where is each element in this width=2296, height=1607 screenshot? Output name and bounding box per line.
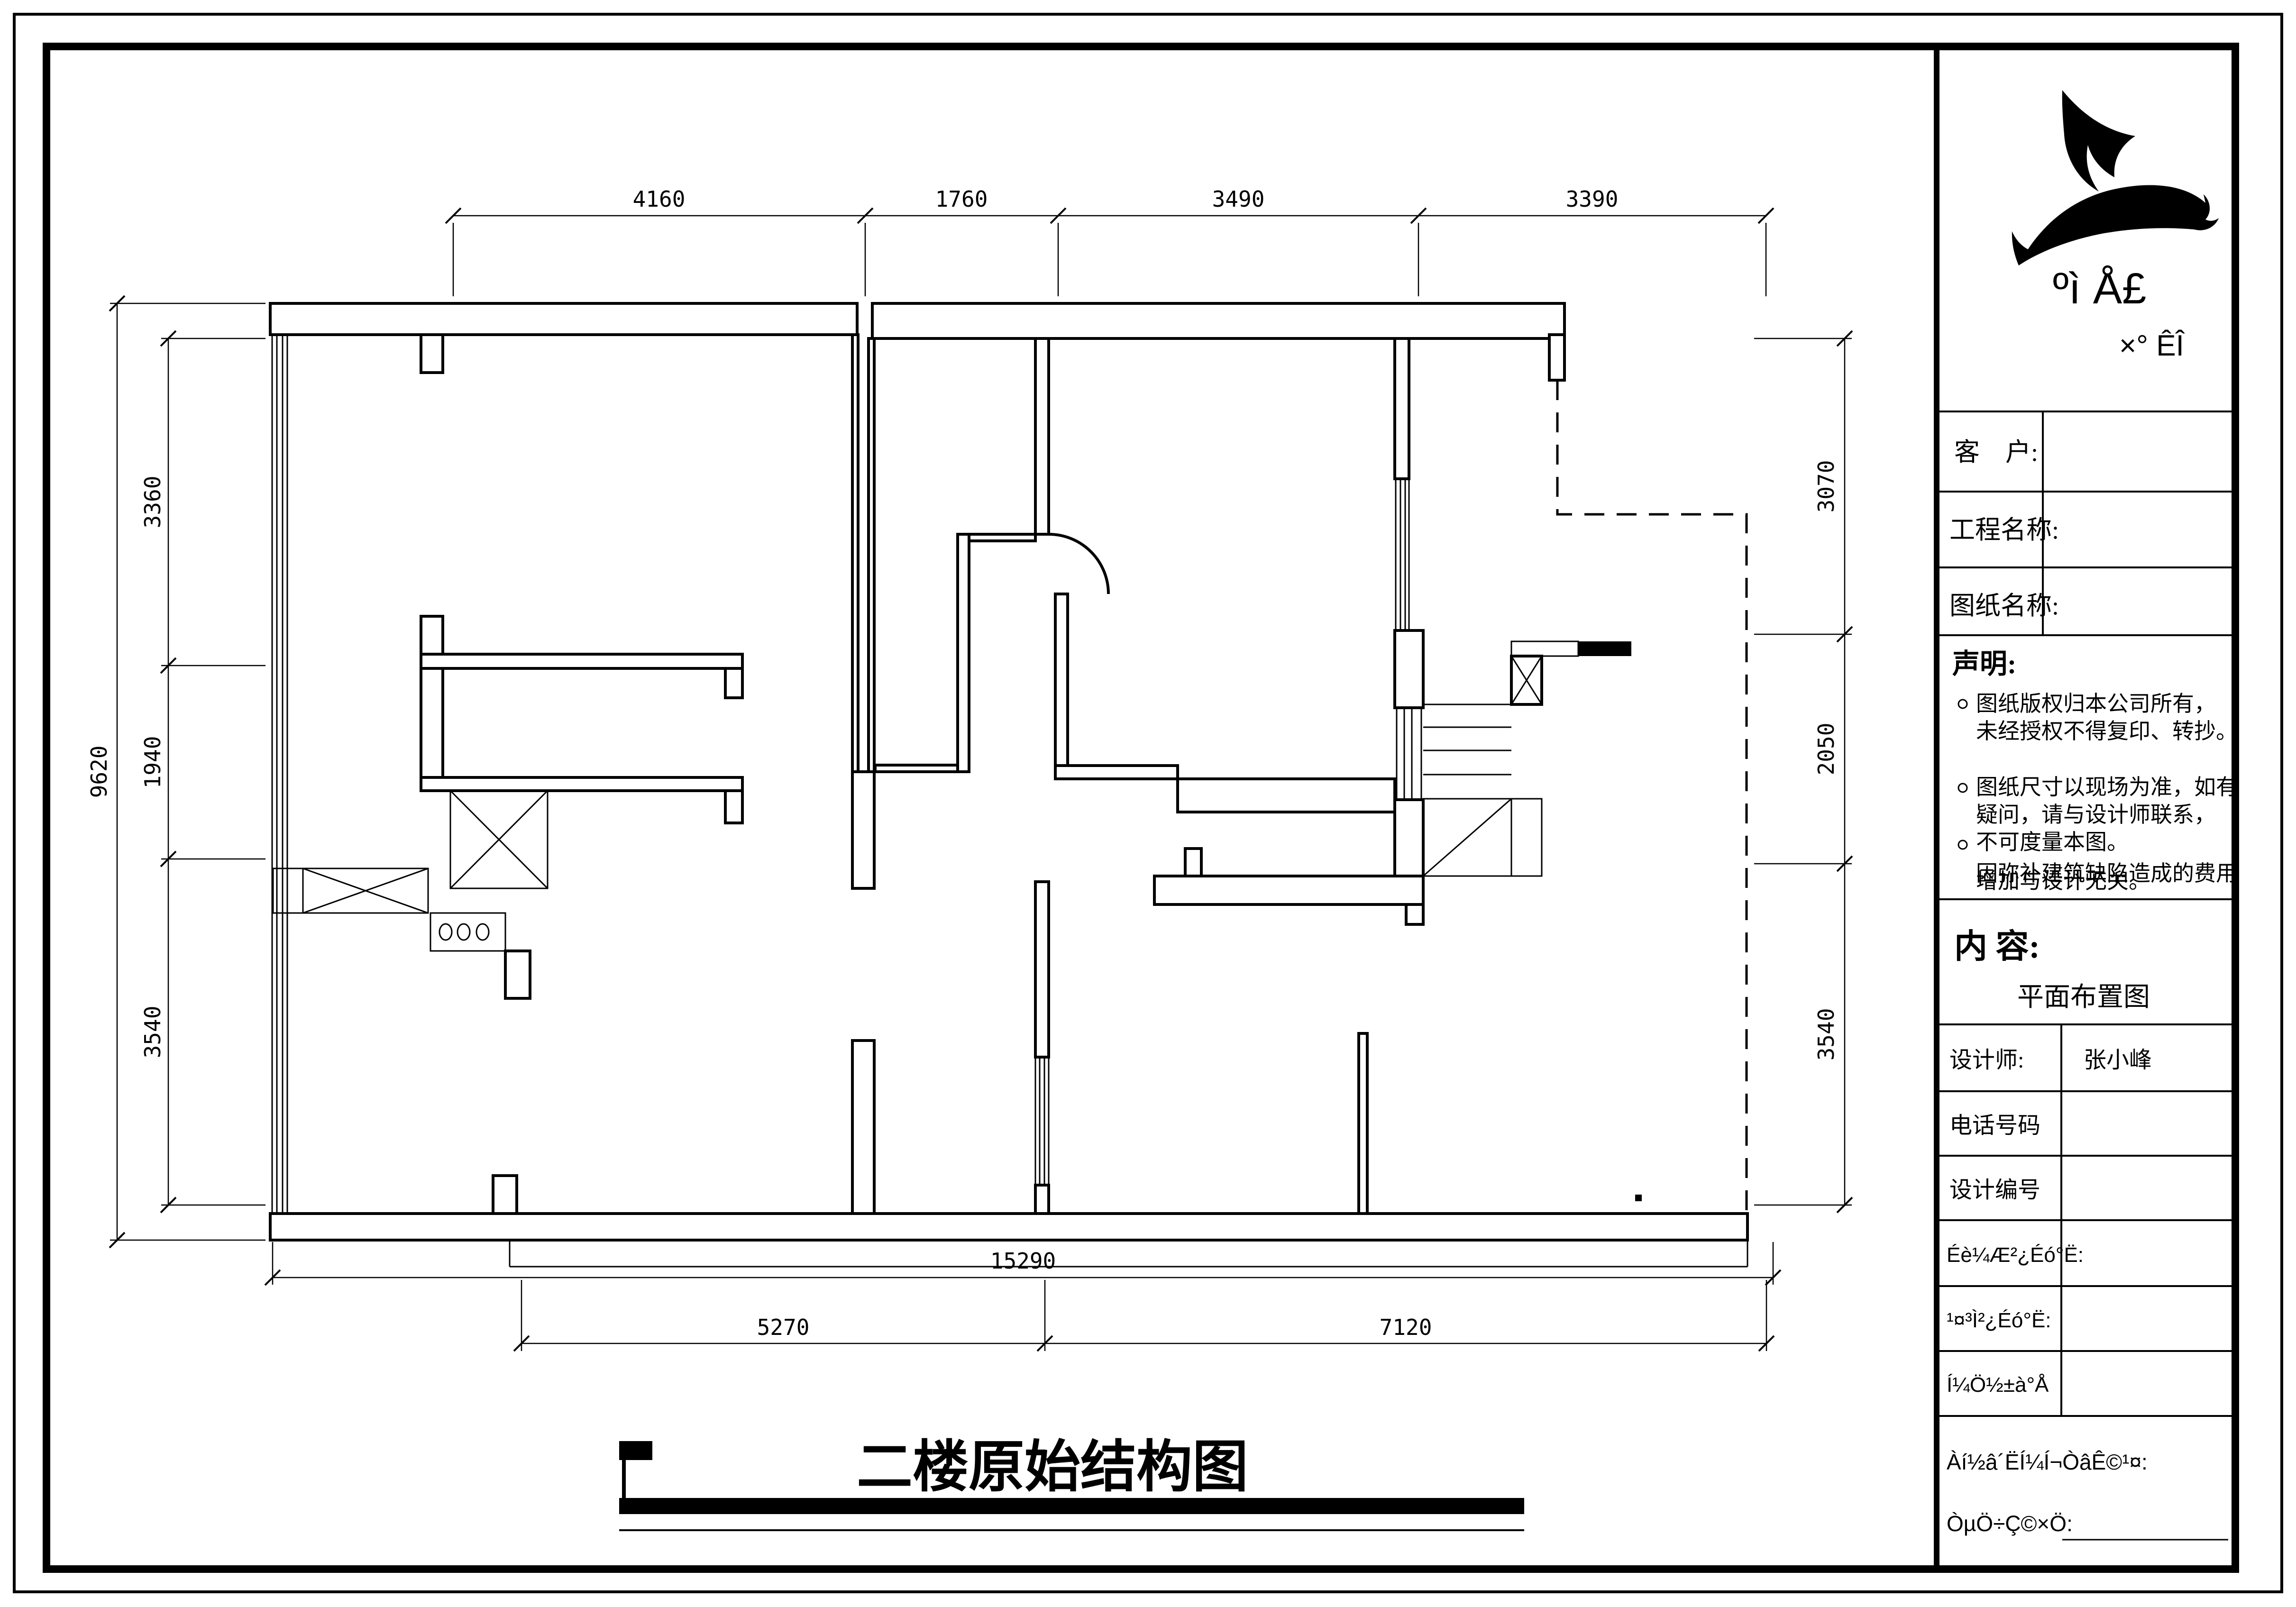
dashed-boundary <box>1557 380 1747 1214</box>
dim-right-1: 3070 <box>1813 460 1839 513</box>
statement-line-3: 图纸尺寸以现场为准，如有 <box>1976 775 2238 799</box>
engineering-review-label: ¹¤³Ì²¿Éó°Ë: <box>1947 1309 2051 1332</box>
statement-line-1: 图纸版权归本公司所有， <box>1976 692 2216 716</box>
statement-line-2: 未经授权不得复印、转抄。 <box>1976 719 2238 743</box>
sheet-border <box>14 14 2282 1592</box>
company-logo-icon <box>2012 90 2219 265</box>
dim-left-overall: 9620 <box>86 746 112 798</box>
statement-line-4: 疑问，请与设计师联系， <box>1976 803 2216 827</box>
owner-sign-label: ÒµÖ÷Ç©×Ö: <box>1947 1511 2073 1536</box>
floor-plan-walls <box>270 303 1747 1267</box>
staircase <box>1423 641 1631 876</box>
dim-left-1: 3360 <box>140 476 165 529</box>
left-room-walls <box>421 616 742 823</box>
content-value: 平面布置图 <box>2017 983 2150 1012</box>
cooktop-icon <box>430 913 505 951</box>
dim-right-3: 3540 <box>1813 1008 1839 1061</box>
dim-top-2: 1760 <box>935 186 988 212</box>
bullet-icon <box>1958 840 1967 849</box>
dim-bottom-2: 7120 <box>1380 1315 1432 1340</box>
title-block: ºì Å£ ×° ÊÎ 客 户: 工程名称: 图纸名称: 声明: 图纸版权归本公… <box>1937 90 2238 1540</box>
statement-line-5: 不可度量本图。 <box>1976 830 2129 854</box>
corridor-z-wall <box>875 534 1035 772</box>
statement-title: 声明: <box>1952 648 2016 679</box>
statement-line-7: 增加与设计无关。 <box>1976 869 2150 893</box>
center-divider-wall <box>852 335 874 1214</box>
dim-bottom-overall: 15290 <box>990 1248 1056 1274</box>
drawing-name-label: 图纸名称: <box>1949 592 2059 620</box>
kitchen-counter <box>273 791 548 998</box>
customer-label: 客 户: <box>1954 438 2038 466</box>
content-label: 内 容: <box>1954 928 2040 965</box>
logo-text-primary: ºì Å£ <box>2053 265 2146 313</box>
logo-text-secondary: ×° ÊÎ <box>2119 329 2185 362</box>
drawing-title: 二楼原始结构图 <box>857 1436 1248 1498</box>
designer-value: 张小峰 <box>2084 1048 2152 1073</box>
drawing-sheet: 4160 1760 3490 3390 9620 3360 1940 3540 <box>0 0 2296 1607</box>
dim-right-2: 2050 <box>1813 723 1839 776</box>
design-no-label: 设计编号 <box>1949 1178 2040 1203</box>
bottom-room-walls <box>1035 882 1367 1214</box>
agree-label: Àí½â´ËÍ¼Í¬ÒâÊ©¹¤: <box>1947 1450 2148 1474</box>
central-room-walls <box>1035 338 1423 876</box>
bullet-icon <box>1958 700 1967 708</box>
stair-black-marker <box>1578 641 1631 656</box>
design-review-label: Éè¼Æ²¿Éó°Ë: <box>1947 1243 2084 1267</box>
dim-left-3: 3540 <box>140 1006 165 1059</box>
dim-top-4: 3390 <box>1566 186 1619 212</box>
dim-top-3: 3490 <box>1212 186 1265 212</box>
statement-bullets <box>1958 700 1967 849</box>
bullet-icon <box>1958 784 1967 792</box>
dim-bottom-1: 5270 <box>757 1315 810 1340</box>
floor-plan-canvas: 4160 1760 3490 3390 9620 3360 1940 3540 <box>0 0 2296 1607</box>
drawing-no-label: Í¼Ö½±à°Å <box>1947 1373 2049 1397</box>
phone-label: 电话号码 <box>1949 1113 2040 1138</box>
left-window-wall <box>272 335 287 1214</box>
project-label: 工程名称: <box>1949 516 2059 544</box>
dim-left-2: 1940 <box>140 736 165 789</box>
designer-label: 设计师: <box>1949 1048 2024 1073</box>
dim-top-1: 4160 <box>633 186 686 212</box>
drawing-title-bar: 二楼原始结构图 <box>619 1436 1524 1530</box>
